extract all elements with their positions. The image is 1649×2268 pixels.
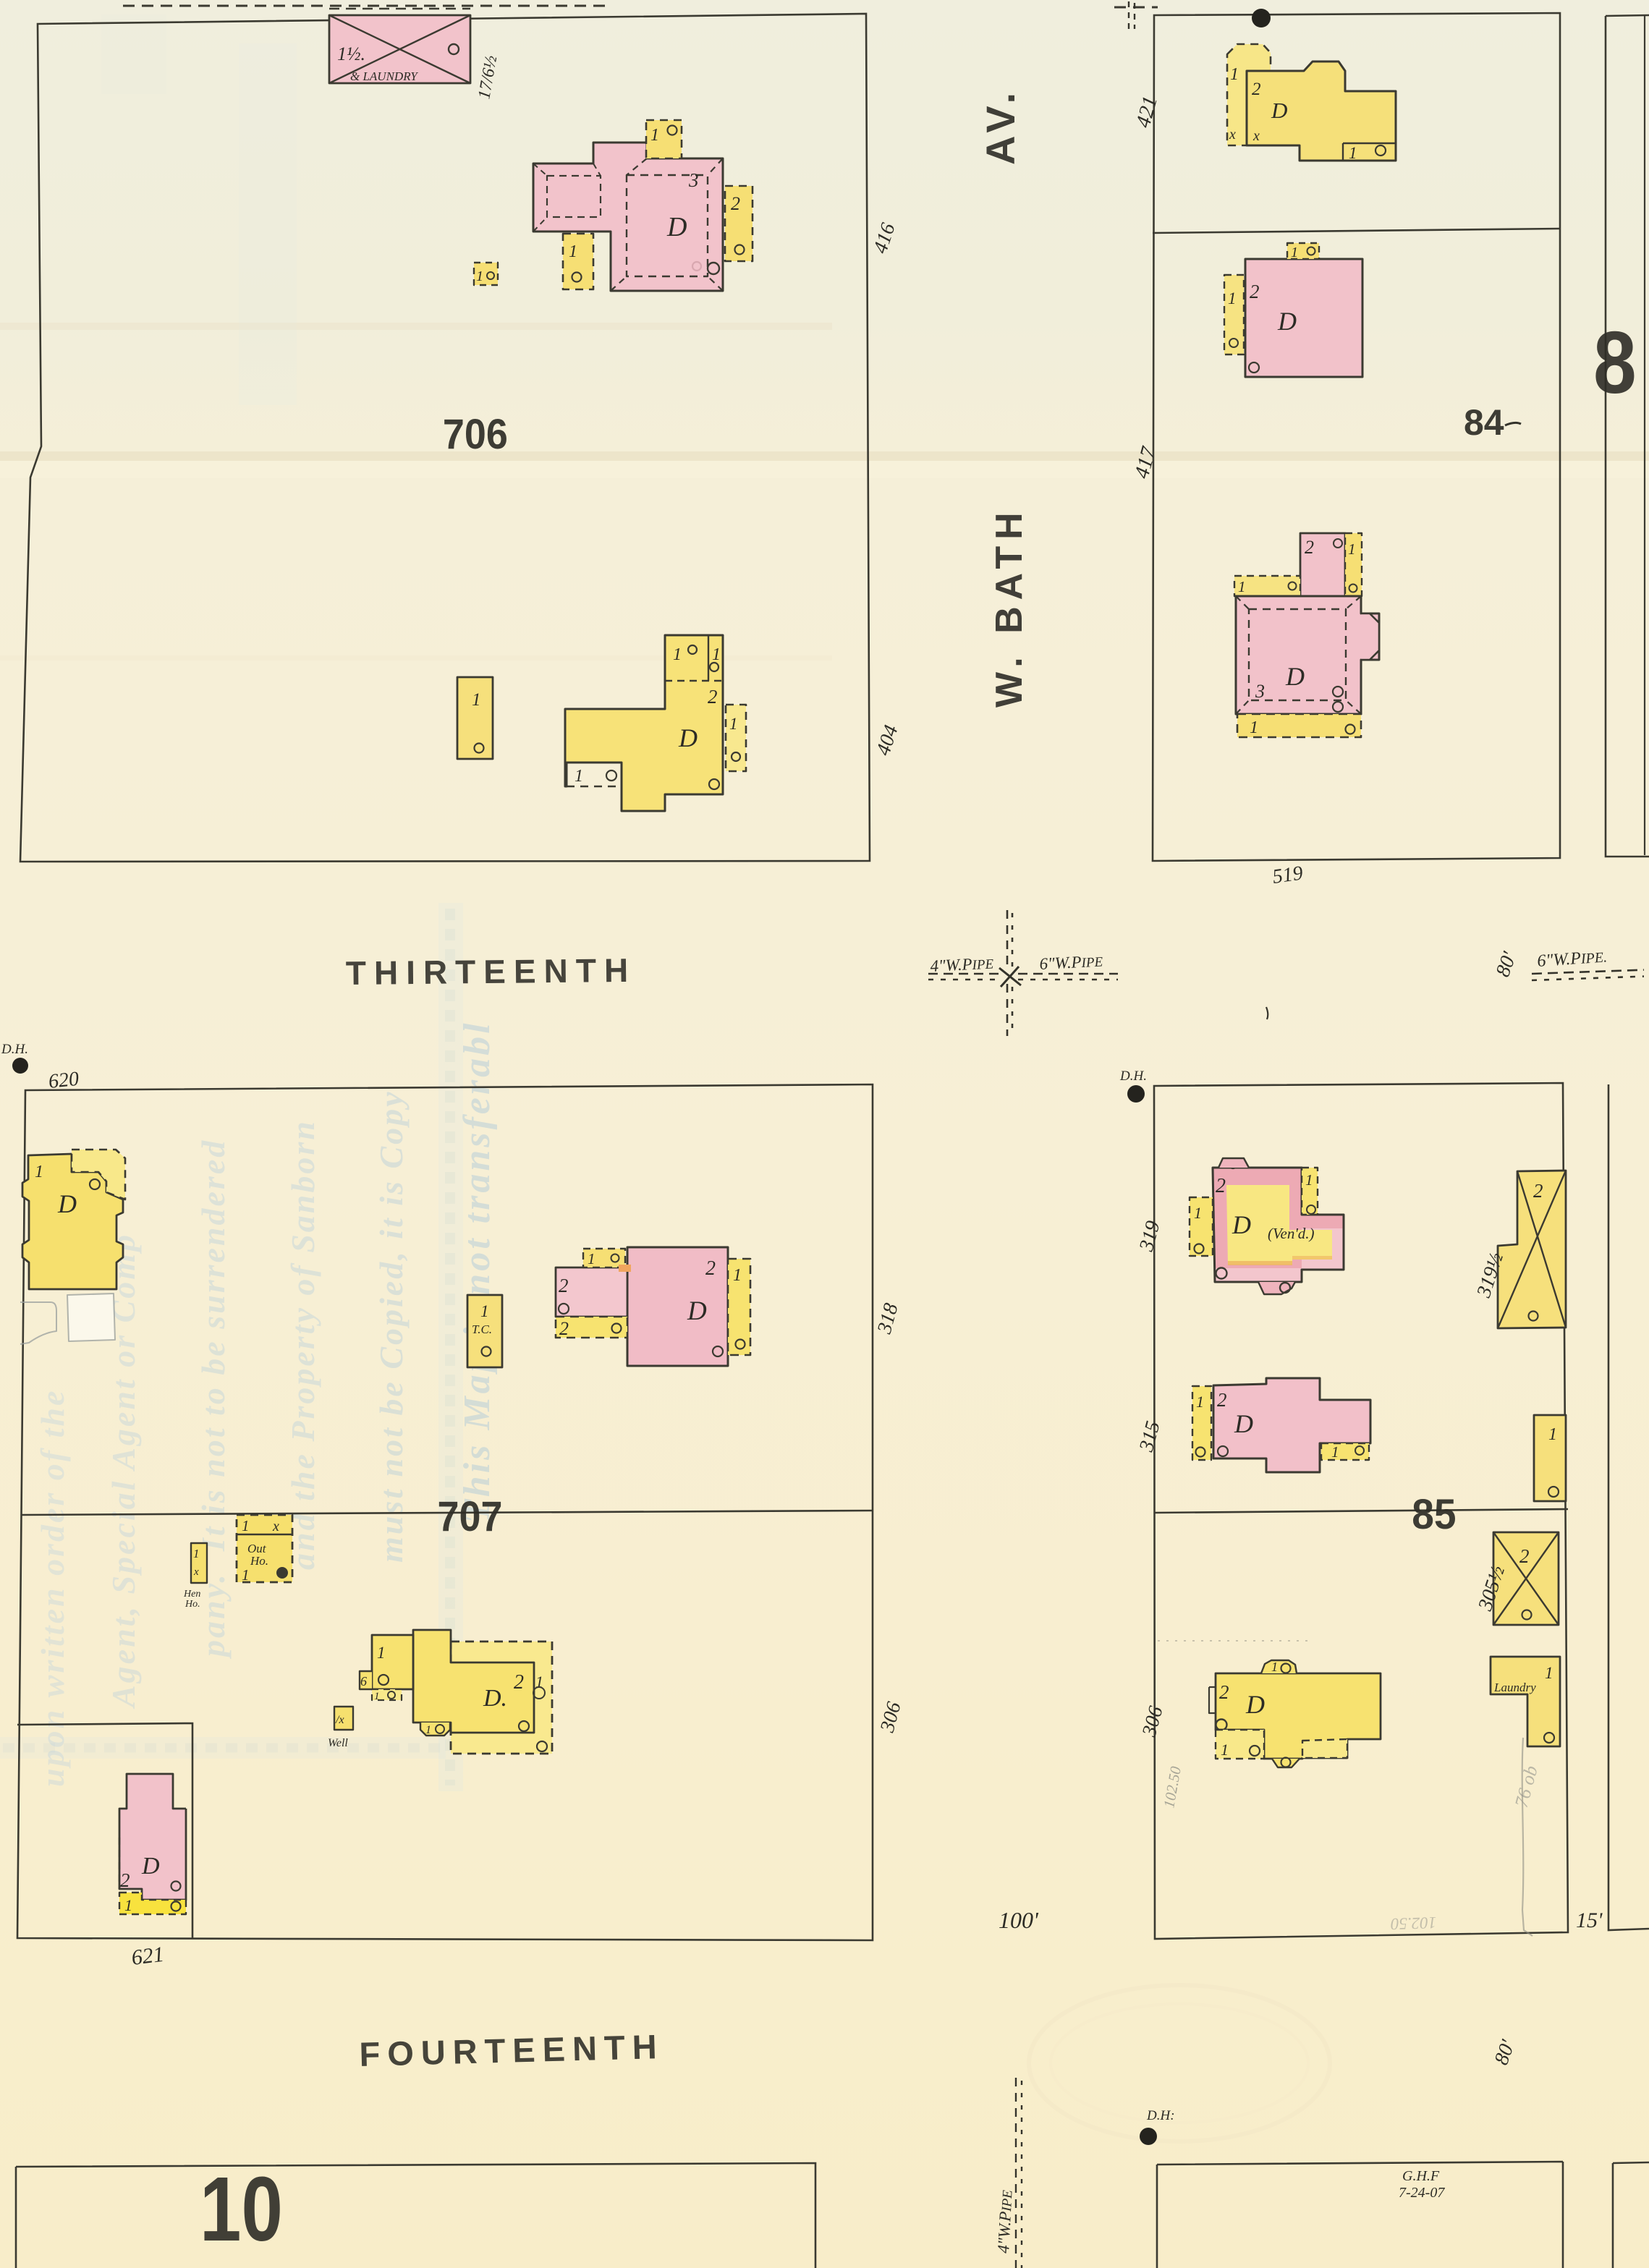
svg-text:D.H:: D.H:	[1146, 2108, 1175, 2123]
svg-text:x: x	[1252, 128, 1260, 144]
svg-text:D: D	[666, 212, 687, 242]
svg-text:D: D	[141, 1853, 160, 1880]
svg-text:x: x	[1229, 127, 1236, 143]
svg-text:T.C.: T.C.	[472, 1322, 492, 1336]
svg-text:2: 2	[1533, 1180, 1543, 1202]
svg-text:1: 1	[377, 1644, 386, 1662]
svg-text:1: 1	[1228, 289, 1237, 307]
svg-text:1: 1	[1545, 1664, 1553, 1682]
svg-text:2: 2	[1216, 1175, 1226, 1197]
svg-text:2: 2	[705, 1257, 716, 1280]
svg-text:1: 1	[1548, 1425, 1557, 1444]
svg-text:1: 1	[1348, 540, 1356, 558]
svg-text:1: 1	[1238, 578, 1246, 595]
svg-text:707: 707	[438, 1492, 503, 1539]
svg-text:1: 1	[480, 1302, 489, 1320]
svg-text:1: 1	[472, 690, 481, 710]
svg-text:1: 1	[569, 242, 577, 261]
svg-text:D: D	[1285, 662, 1305, 691]
svg-text:1: 1	[729, 715, 738, 733]
svg-text:must not be Copied, it is Copy: must not be Copied, it is Copy	[373, 1090, 410, 1563]
svg-text:8: 8	[1593, 314, 1637, 412]
svg-text:2: 2	[731, 193, 740, 214]
svg-text:2: 2	[120, 1869, 130, 1891]
svg-text:3: 3	[1255, 681, 1265, 702]
svg-text:6: 6	[360, 1674, 367, 1689]
svg-text:/x: /x	[335, 1714, 344, 1726]
svg-text:x: x	[193, 1566, 199, 1578]
svg-text:1: 1	[1250, 718, 1258, 737]
svg-text:1: 1	[425, 1724, 431, 1736]
svg-text:1: 1	[1291, 245, 1298, 260]
svg-text:1: 1	[1349, 144, 1357, 162]
svg-text:2: 2	[1305, 537, 1314, 558]
svg-text:1: 1	[588, 1250, 595, 1267]
svg-text:2: 2	[514, 1671, 524, 1694]
svg-text:620: 620	[47, 1068, 80, 1093]
svg-text:2: 2	[1219, 1681, 1229, 1703]
svg-text:D: D	[1232, 1210, 1251, 1239]
svg-text:7-24-07: 7-24-07	[1399, 2185, 1445, 2201]
svg-text:D: D	[57, 1189, 77, 1218]
svg-text:1: 1	[1221, 1741, 1229, 1759]
svg-text:102.50: 102.50	[1390, 1914, 1437, 1933]
svg-text:3: 3	[688, 169, 699, 191]
svg-text:x: x	[272, 1519, 279, 1534]
svg-text:& LAUNDRY: & LAUNDRY	[350, 69, 418, 83]
svg-text:Laundry: Laundry	[1493, 1681, 1536, 1694]
svg-text:Well: Well	[328, 1737, 348, 1749]
svg-text:1: 1	[1196, 1393, 1204, 1411]
svg-text:2: 2	[1519, 1545, 1530, 1567]
svg-text:upon written order of the: upon written order of the	[34, 1389, 71, 1787]
svg-text:1: 1	[575, 767, 583, 786]
svg-text:1: 1	[242, 1566, 250, 1584]
svg-text:2: 2	[1252, 80, 1261, 99]
svg-text:D: D	[1271, 98, 1287, 123]
svg-text:2: 2	[1250, 281, 1260, 302]
svg-text:Ho.: Ho.	[250, 1554, 268, 1568]
svg-text:85: 85	[1412, 1491, 1456, 1538]
svg-text:D: D	[1234, 1409, 1253, 1438]
svg-text:1: 1	[1271, 1660, 1278, 1674]
svg-text:D.H.: D.H.	[1119, 1069, 1147, 1084]
svg-text:84: 84	[1464, 402, 1504, 443]
svg-text:G.H.F: G.H.F	[1402, 2168, 1440, 2184]
svg-text:1: 1	[1194, 1204, 1202, 1222]
svg-text:D: D	[678, 723, 698, 752]
svg-text:519: 519	[1271, 862, 1305, 888]
svg-text:2: 2	[708, 686, 718, 708]
svg-text:W. BATH: W. BATH	[988, 506, 1030, 708]
svg-text:1: 1	[1331, 1443, 1339, 1461]
svg-text:10: 10	[200, 2159, 283, 2260]
svg-text:D: D	[1277, 307, 1297, 336]
svg-text:1: 1	[650, 126, 659, 145]
svg-text:1: 1	[374, 1691, 380, 1702]
svg-text:(Ven'd.): (Ven'd.)	[1268, 1225, 1315, 1242]
svg-text:1: 1	[242, 1517, 250, 1534]
svg-text:1: 1	[712, 645, 721, 664]
svg-text:1: 1	[476, 268, 483, 284]
svg-text:1½.: 1½.	[337, 43, 365, 64]
svg-text:D.H.: D.H.	[1, 1042, 28, 1057]
svg-text:6"W.PIPE: 6"W.PIPE	[1039, 951, 1103, 973]
svg-text:1: 1	[673, 645, 682, 664]
svg-text:621: 621	[130, 1942, 166, 1970]
svg-text:100': 100'	[999, 1907, 1039, 1933]
svg-text:Ho.: Ho.	[185, 1599, 200, 1610]
svg-text:Hen: Hen	[183, 1589, 200, 1600]
svg-text:D: D	[1245, 1690, 1265, 1719]
svg-text:and the Property of Sanborn: and the Property of Sanborn	[284, 1119, 321, 1570]
svg-text:AV.: AV.	[978, 87, 1023, 165]
svg-text:1: 1	[35, 1163, 43, 1181]
svg-text:4"W.PIPE: 4"W.PIPE	[930, 954, 994, 975]
svg-text:1: 1	[733, 1266, 742, 1285]
svg-text:15': 15'	[1576, 1908, 1603, 1932]
svg-text:1: 1	[193, 1547, 200, 1560]
svg-text:1: 1	[1305, 1171, 1313, 1189]
svg-text:2: 2	[559, 1318, 569, 1339]
svg-text:2: 2	[559, 1275, 569, 1296]
svg-text:THIRTEENTH: THIRTEENTH	[346, 951, 637, 992]
svg-text:2: 2	[1217, 1389, 1227, 1411]
svg-text:This Map is not transferabl: This Map is not transferabl	[457, 1020, 498, 1523]
svg-text:706: 706	[443, 410, 508, 457]
svg-text:1: 1	[1230, 65, 1239, 84]
svg-text:FOURTEENTH: FOURTEENTH	[359, 2027, 664, 2073]
svg-text:1: 1	[124, 1896, 132, 1914]
svg-text:D: D	[687, 1296, 707, 1326]
svg-text:D.: D.	[483, 1685, 507, 1712]
